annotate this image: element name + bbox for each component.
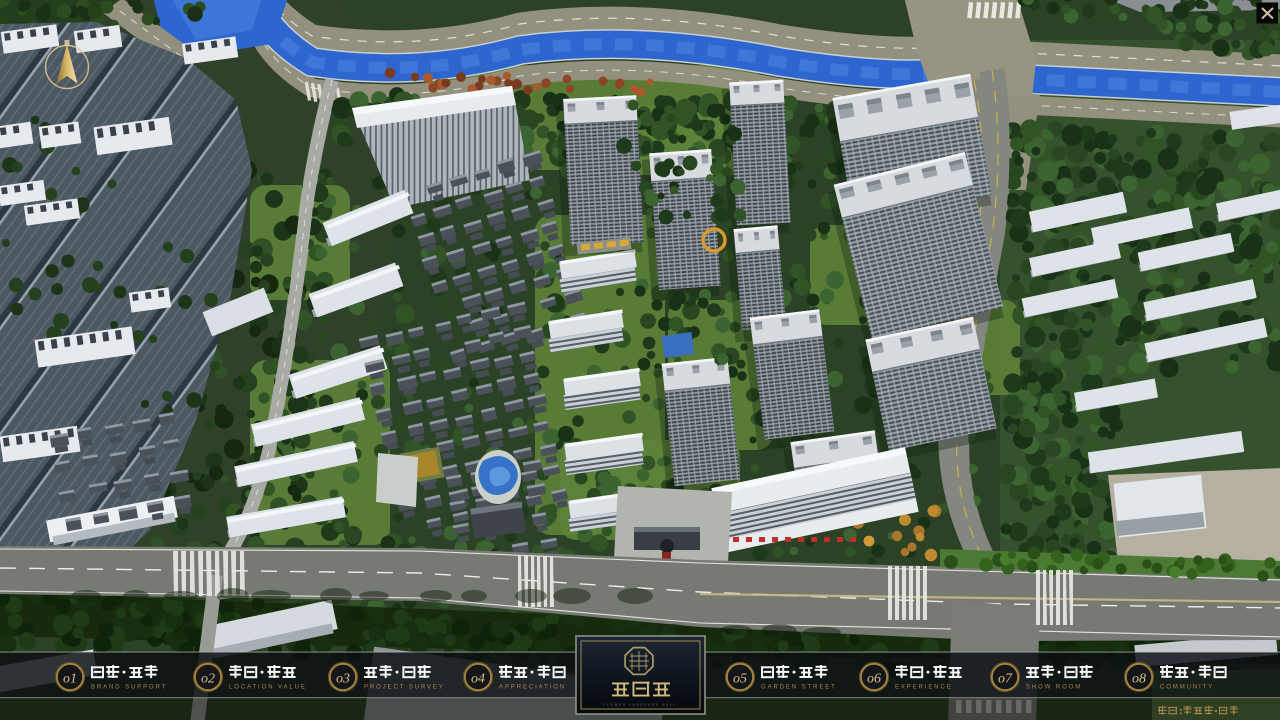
svg-text:o7: o7 — [998, 672, 1013, 687]
svg-text:GARDEN STREET: GARDEN STREET — [761, 685, 837, 691]
svg-text:o1: o1 — [63, 672, 77, 687]
svg-text:o5: o5 — [733, 672, 747, 687]
svg-text:o4: o4 — [471, 672, 485, 687]
svg-text:LOCATION VALUE: LOCATION VALUE — [229, 685, 307, 691]
svg-text:COMMUNITY: COMMUNITY — [1160, 685, 1214, 691]
svg-text:o3: o3 — [336, 672, 350, 687]
svg-text:PROJECT SURVEY: PROJECT SURVEY — [364, 685, 445, 691]
svg-text:APPRECIATION: APPRECIATION — [499, 685, 566, 691]
svg-text:o6: o6 — [867, 672, 881, 687]
svg-text:BRAND SUPPORT: BRAND SUPPORT — [91, 685, 167, 691]
svg-text:o2: o2 — [201, 672, 215, 687]
svg-text:o8: o8 — [1132, 672, 1146, 687]
svg-text:FLOWER LANGUAGE HALL: FLOWER LANGUAGE HALL — [603, 703, 676, 707]
svg-text:SHOW ROOM: SHOW ROOM — [1026, 685, 1082, 691]
svg-text:EXPERIENCE: EXPERIENCE — [895, 685, 953, 691]
